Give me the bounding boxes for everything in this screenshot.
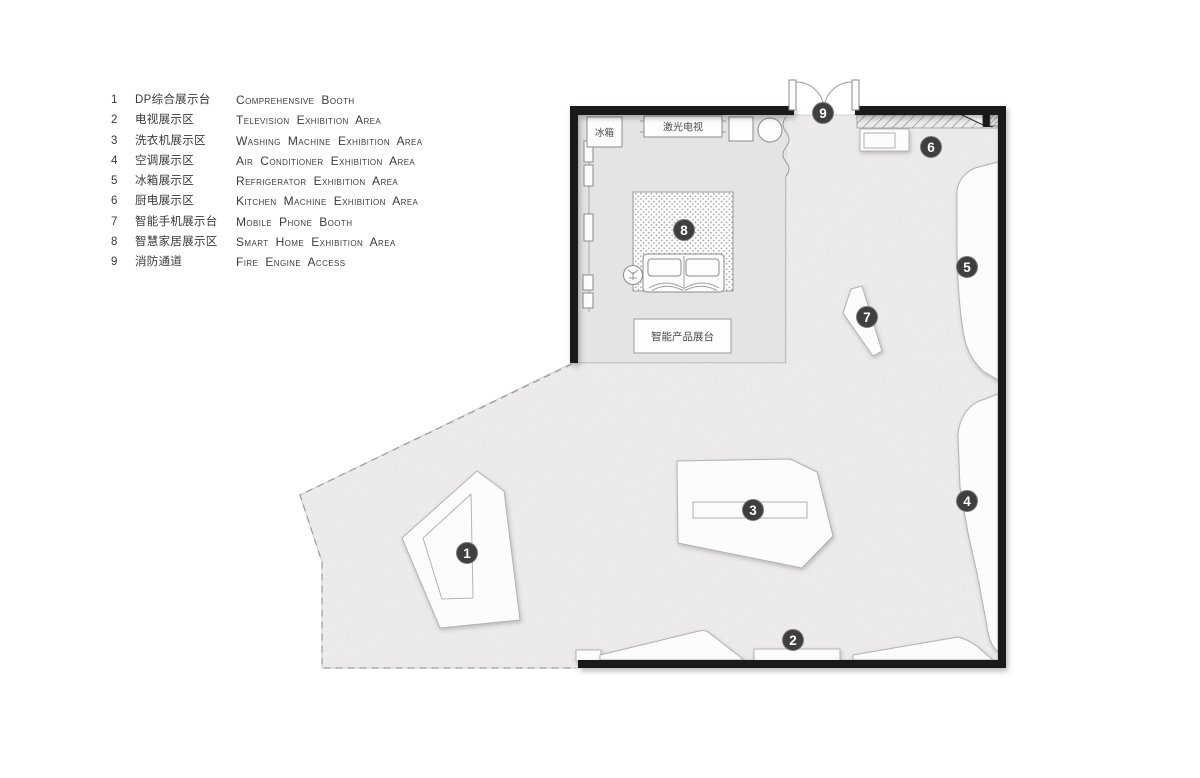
marker-3-number: 3: [749, 503, 757, 518]
smart-product-booth-label: 智能产品展台: [651, 330, 714, 343]
marker-1-number: 1: [463, 546, 471, 561]
area-2-tv-stand: [754, 649, 840, 661]
floor-plan-page: 1 DP综合展示台 Comprehensive Booth 2 电视展示区 Te…: [0, 0, 1200, 778]
cabinet-box: [729, 117, 753, 141]
marker-4-number: 4: [963, 494, 971, 509]
fridge-label: 冰箱: [595, 127, 614, 139]
marker-7: 7: [857, 307, 878, 328]
pillow-left: [648, 259, 681, 276]
bed-area: [633, 192, 733, 292]
marker-8-number: 8: [680, 223, 688, 238]
pillow-right: [686, 259, 719, 276]
marker-9: 9: [813, 103, 834, 124]
fridge-box: 冰箱: [587, 117, 622, 147]
laser-tv-box: 激光电视: [640, 116, 726, 137]
marker-5-number: 5: [963, 260, 971, 275]
smart-product-booth: 智能产品展台: [634, 319, 731, 353]
round-table: [758, 118, 782, 142]
booth-6-kitchen: [860, 129, 909, 151]
marker-8: 8: [674, 220, 695, 241]
marker-3: 3: [743, 500, 764, 521]
plant-symbol: [624, 266, 643, 285]
window-fixtures: [583, 140, 593, 312]
area-2-left-block: [576, 650, 601, 661]
marker-1: 1: [457, 543, 478, 564]
marker-7-number: 7: [863, 310, 871, 325]
marker-2-number: 2: [789, 633, 797, 648]
marker-2: 2: [783, 630, 804, 651]
floor-plan: 冰箱 激光电视: [0, 0, 1200, 778]
marker-6-number: 6: [927, 140, 935, 155]
marker-4: 4: [957, 491, 978, 512]
laser-tv-label: 激光电视: [663, 121, 703, 134]
marker-6: 6: [921, 137, 942, 158]
marker-5: 5: [957, 257, 978, 278]
marker-9-number: 9: [819, 106, 827, 121]
